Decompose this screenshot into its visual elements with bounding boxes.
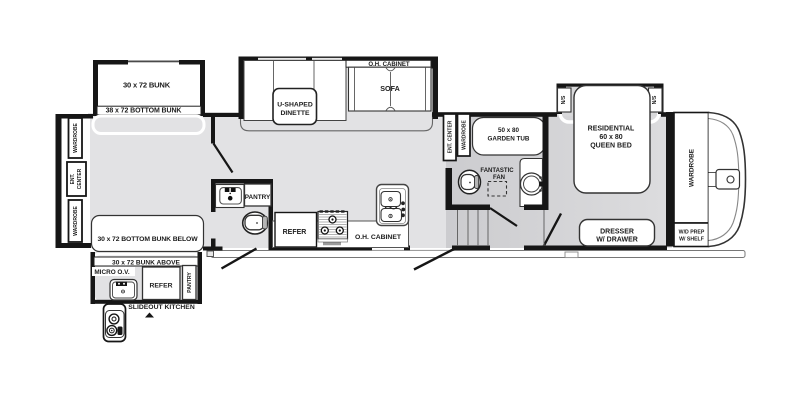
svg-text:PANTRY: PANTRY <box>187 272 193 293</box>
svg-text:MICRO O.V.: MICRO O.V. <box>94 269 129 276</box>
svg-text:FANTASTIC: FANTASTIC <box>480 168 514 174</box>
svg-text:N/S: N/S <box>561 95 567 104</box>
svg-text:SLIDEOUT KITCHEN: SLIDEOUT KITCHEN <box>128 304 195 311</box>
svg-text:60 x 80: 60 x 80 <box>599 134 622 141</box>
svg-text:ENT. CENTER: ENT. CENTER <box>448 120 454 153</box>
svg-text:30 x 72 BUNK: 30 x 72 BUNK <box>123 81 171 90</box>
svg-text:WARDROBE: WARDROBE <box>689 148 696 187</box>
svg-text:W/ DRAWER: W/ DRAWER <box>596 237 638 244</box>
svg-text:DINETTE: DINETTE <box>280 110 310 117</box>
svg-text:GARDEN TUB: GARDEN TUB <box>488 136 530 143</box>
svg-text:W/ SHELF: W/ SHELF <box>679 237 704 243</box>
svg-text:RESIDENTIAL: RESIDENTIAL <box>588 126 635 133</box>
svg-text:REFER: REFER <box>149 283 172 290</box>
svg-text:SOFA: SOFA <box>380 84 400 93</box>
svg-text:WARDROBE: WARDROBE <box>73 205 79 235</box>
svg-text:FAN: FAN <box>493 175 505 181</box>
svg-text:CENTER: CENTER <box>77 168 83 189</box>
svg-text:REFER: REFER <box>283 229 307 236</box>
svg-text:QUEEN BED: QUEEN BED <box>590 143 632 150</box>
svg-text:DRESSER: DRESSER <box>600 229 634 236</box>
svg-text:50 x 80: 50 x 80 <box>498 127 520 134</box>
svg-text:ENT.: ENT. <box>70 173 76 184</box>
svg-text:30 x 72 BUNK ABOVE: 30 x 72 BUNK ABOVE <box>112 260 181 267</box>
svg-text:N/S: N/S <box>652 95 658 104</box>
svg-text:PANTRY: PANTRY <box>245 194 271 201</box>
svg-text:W/D PREP: W/D PREP <box>679 230 705 236</box>
svg-text:O.H. CABINET: O.H. CABINET <box>355 234 402 241</box>
svg-text:WARDROBE: WARDROBE <box>73 122 79 152</box>
svg-text:38 x 72 BOTTOM BUNK: 38 x 72 BOTTOM BUNK <box>106 108 182 115</box>
svg-text:30 x 72 BOTTOM BUNK BELOW: 30 x 72 BOTTOM BUNK BELOW <box>97 236 198 243</box>
svg-text:WARDROBE: WARDROBE <box>462 119 468 149</box>
svg-text:U-SHAPED: U-SHAPED <box>277 102 313 109</box>
